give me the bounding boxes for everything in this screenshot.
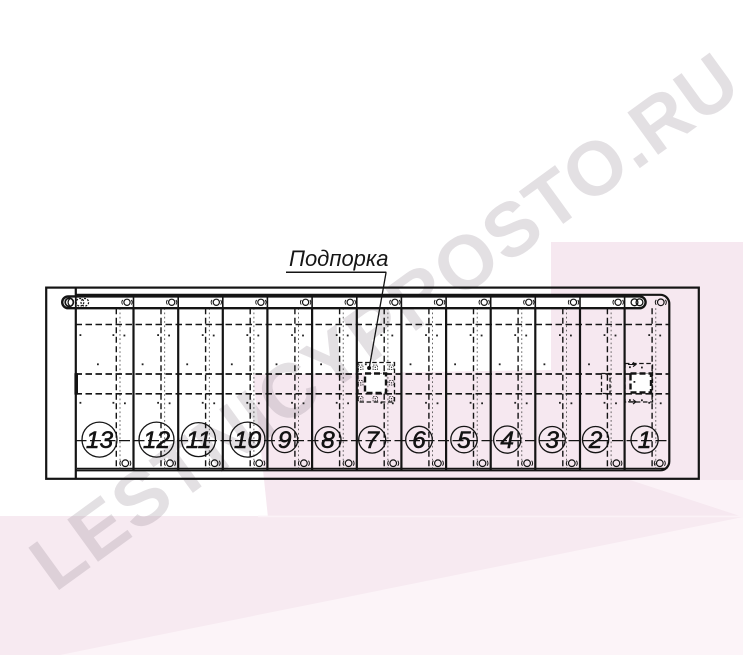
svg-text:2: 2 bbox=[588, 427, 603, 454]
svg-text:4: 4 bbox=[500, 427, 514, 454]
svg-text:1: 1 bbox=[638, 427, 652, 454]
svg-text:3: 3 bbox=[545, 427, 559, 454]
svg-text:5: 5 bbox=[457, 427, 471, 454]
svg-text:9: 9 bbox=[278, 427, 292, 454]
svg-text:13: 13 bbox=[86, 427, 114, 454]
svg-text:Подпорка: Подпорка bbox=[289, 246, 389, 271]
svg-text:7: 7 bbox=[365, 427, 380, 454]
svg-text:11: 11 bbox=[186, 427, 211, 454]
svg-text:12: 12 bbox=[143, 427, 171, 454]
svg-text:10: 10 bbox=[234, 427, 262, 454]
svg-text:8: 8 bbox=[321, 427, 335, 454]
svg-text:6: 6 bbox=[412, 427, 426, 454]
